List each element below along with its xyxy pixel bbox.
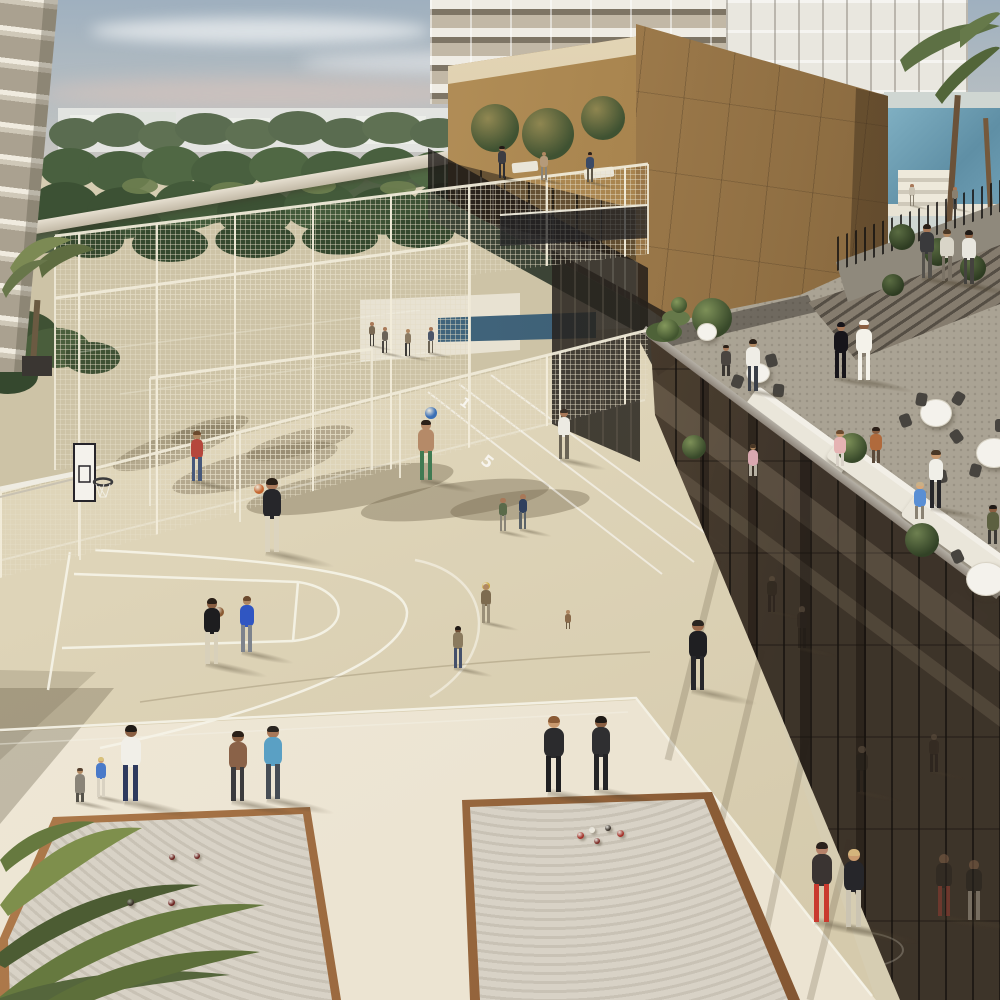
ground-base [0, 165, 1000, 1000]
architectural-rendering-sports-plaza: 15 [0, 0, 1000, 1000]
cloud [90, 18, 430, 44]
distant-building [300, 110, 340, 144]
white-tower-mullions [430, 0, 730, 104]
pool-steps [898, 170, 950, 206]
right-white-building-windows [726, 0, 968, 94]
distant-building [70, 115, 100, 143]
distant-building [356, 116, 426, 144]
distant-building [130, 112, 176, 144]
distant-building [210, 118, 270, 144]
